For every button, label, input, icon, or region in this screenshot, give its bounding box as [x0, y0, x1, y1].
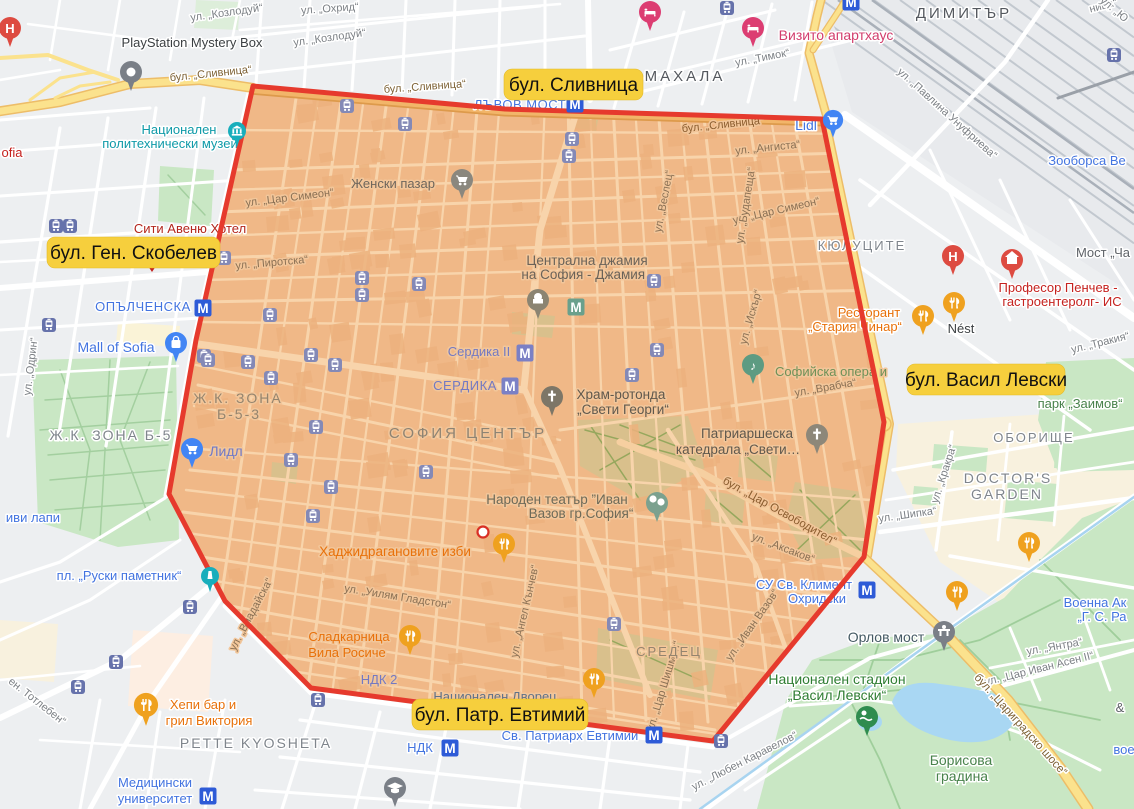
svg-text:Сити Авеню Хотел: Сити Авеню Хотел: [134, 221, 246, 236]
svg-text:ofia: ofia: [2, 145, 24, 160]
svg-text:Орлов мост: Орлов мост: [848, 629, 925, 645]
svg-text:бул. Васил Левски: бул. Васил Левски: [905, 370, 1067, 391]
svg-text:СОФИЯ ЦЕНТЪР: СОФИЯ ЦЕНТЪР: [389, 425, 547, 442]
svg-text:Патриаршеска: Патриаршеска: [701, 426, 793, 441]
svg-text:ОБОРИЩЕ: ОБОРИЩЕ: [993, 430, 1074, 445]
svg-text:Зооборса Ве: Зооборса Ве: [1048, 153, 1125, 168]
svg-text:МАХАЛА: МАХАЛА: [645, 68, 726, 85]
svg-text:Визито апартхаус: Визито апартхаус: [779, 27, 894, 43]
svg-text:пл. „Руски паметник“: пл. „Руски паметник“: [57, 568, 182, 583]
svg-text:КЮЛУЦИТЕ: КЮЛУЦИТЕ: [818, 238, 906, 253]
svg-text:СРЕДЕЦ: СРЕДЕЦ: [636, 644, 702, 659]
svg-text:градина: градина: [936, 768, 988, 784]
svg-text:бул. Сливница: бул. Сливница: [509, 75, 639, 96]
svg-text:Ж.К. ЗОНА Б-5: Ж.К. ЗОНА Б-5: [50, 427, 173, 443]
svg-text:Мост „Ча: Мост „Ча: [1076, 245, 1131, 260]
svg-text:H: H: [948, 249, 957, 264]
svg-text:Народен театър ”Иван: Народен театър ”Иван: [486, 492, 627, 507]
svg-text:СЕРДИКА: СЕРДИКА: [433, 378, 497, 393]
svg-text:Сладкарница: Сладкарница: [308, 629, 390, 644]
svg-text:вое: вое: [1113, 742, 1134, 757]
svg-text:Б-5-3: Б-5-3: [217, 406, 261, 422]
svg-text:Централна джамия: Централна джамия: [526, 253, 647, 268]
svg-text:Вазов гр.София“: Вазов гр.София“: [529, 506, 634, 521]
svg-text:иви лапи: иви лапи: [6, 510, 60, 525]
svg-text:Женски пазар: Женски пазар: [351, 176, 435, 191]
svg-text:Nést: Nést: [948, 321, 975, 336]
svg-text:университет: университет: [118, 791, 193, 806]
svg-text:НДК: НДК: [407, 740, 433, 755]
svg-text:♪: ♪: [750, 359, 756, 373]
svg-text:Mall of Sofia: Mall of Sofia: [77, 339, 154, 355]
svg-text:катедрала „Свети…: катедрала „Свети…: [676, 442, 800, 457]
svg-text:PlayStation Mystery Box: PlayStation Mystery Box: [122, 35, 263, 50]
svg-text:Професор Пенчев -: Професор Пенчев -: [998, 280, 1117, 295]
svg-text:„Свети Георги“: „Свети Георги“: [577, 402, 669, 417]
svg-text:„Васил Левски“: „Васил Левски“: [788, 687, 887, 703]
svg-text:&: &: [1116, 700, 1125, 715]
svg-text:Ресторант: Ресторант: [838, 305, 901, 320]
svg-text:на София - Джамия…: на София - Джамия…: [521, 267, 658, 282]
svg-text:H: H: [5, 21, 14, 36]
svg-text:Национален стадион: Национален стадион: [768, 671, 905, 687]
svg-text:НДК 2: НДК 2: [361, 672, 398, 687]
svg-text:Сердика II: Сердика II: [448, 344, 510, 359]
svg-text:Хаджидрагановите изби: Хаджидрагановите изби: [319, 544, 471, 559]
svg-text:Вила Росиче: Вила Росиче: [308, 645, 385, 660]
svg-text:грил Виктория: грил Виктория: [166, 713, 253, 728]
svg-text:DOCTOR'S: DOCTOR'S: [964, 470, 1052, 486]
svg-text:Медицински: Медицински: [118, 775, 192, 790]
svg-text:Лидл: Лидл: [209, 443, 242, 459]
svg-text:Храм-ротонда: Храм-ротонда: [577, 387, 666, 402]
svg-text:бул. Патр. Евтимий: бул. Патр. Евтимий: [415, 705, 586, 726]
svg-text:Борисова: Борисова: [930, 752, 993, 768]
svg-text:GARDEN: GARDEN: [971, 486, 1043, 502]
svg-text:Национален: Национален: [142, 122, 217, 137]
svg-text:Хепи бар и: Хепи бар и: [170, 697, 236, 712]
svg-text:Военна Ак: Военна Ак: [1064, 595, 1127, 610]
svg-text:PETTE KYOSHETA: PETTE KYOSHETA: [180, 735, 332, 751]
svg-text:парк „Заимов“: парк „Заимов“: [1038, 396, 1123, 411]
svg-text:ДИМИТЪР: ДИМИТЪР: [916, 5, 1012, 22]
svg-text:„Стария Чинар“: „Стария Чинар“: [808, 319, 902, 334]
svg-text:политехнически музей: политехнически музей: [102, 136, 237, 151]
svg-text:ОПЪЛЧЕНСКА: ОПЪЛЧЕНСКА: [95, 299, 191, 314]
svg-text:бул. Ген. Скобелев: бул. Ген. Скобелев: [50, 243, 217, 264]
svg-text:гастроентеролг- ИС: гастроентеролг- ИС: [1002, 294, 1121, 309]
svg-text:Ж.К. ЗОНА: Ж.К. ЗОНА: [193, 390, 282, 406]
svg-text:„Г. С. Ра: „Г. С. Ра: [1077, 609, 1127, 624]
